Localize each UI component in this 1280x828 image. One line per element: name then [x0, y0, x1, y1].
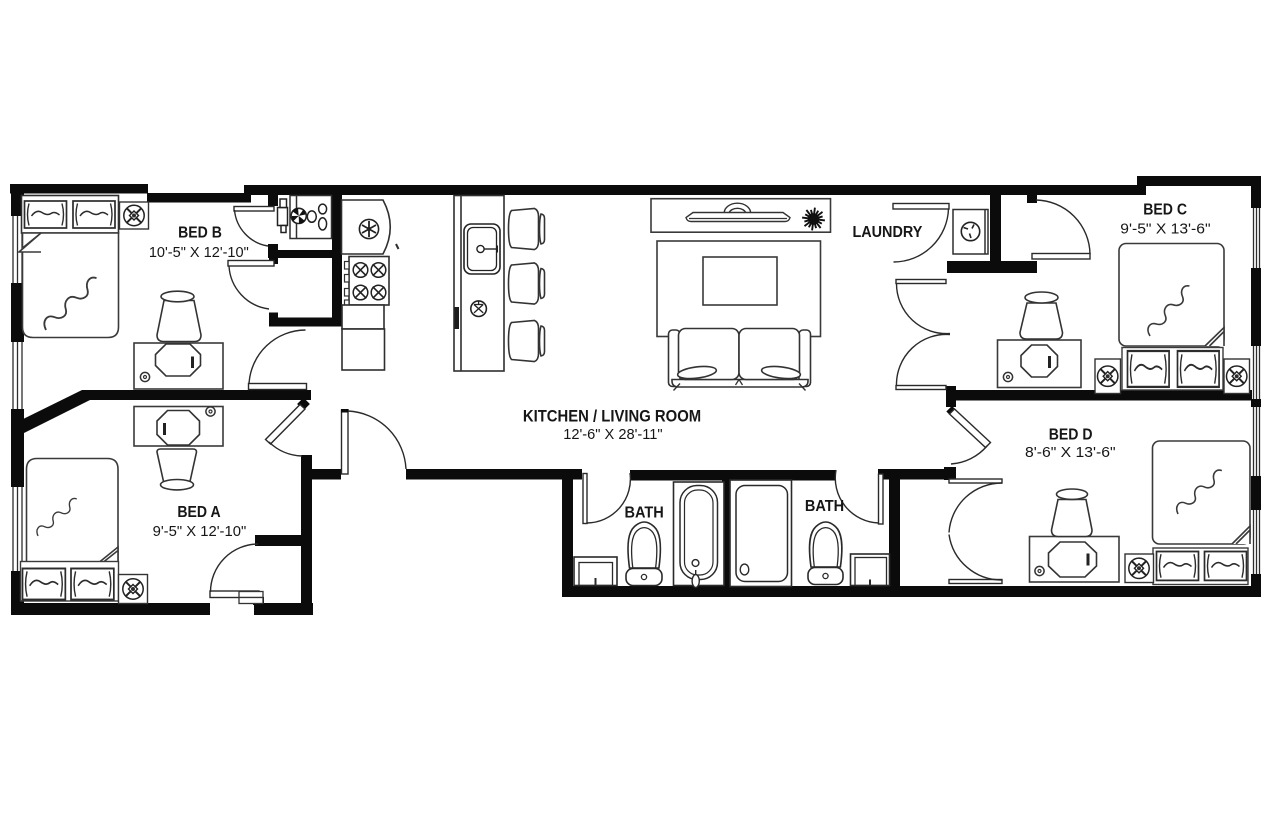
svg-text:BED B: BED B [178, 224, 222, 242]
svg-text:BATH: BATH [624, 504, 663, 522]
svg-text:LAUNDRY: LAUNDRY [852, 224, 922, 242]
svg-text:KITCHEN / LIVING ROOM: KITCHEN / LIVING ROOM [523, 408, 701, 426]
svg-text:8'-6" X 13'-6": 8'-6" X 13'-6" [1025, 444, 1116, 461]
svg-text:9'-5" X 13'-6": 9'-5" X 13'-6" [1120, 221, 1210, 238]
svg-text:10'-5" X 12'-10": 10'-5" X 12'-10" [149, 245, 249, 261]
svg-text:BED A: BED A [177, 503, 220, 521]
svg-text:BED C: BED C [1143, 201, 1187, 219]
svg-text:9'-5" X 12'-10": 9'-5" X 12'-10" [153, 524, 247, 540]
svg-text:12'-6" X 28'-11": 12'-6" X 28'-11" [563, 427, 662, 443]
svg-text:BATH: BATH [805, 498, 844, 516]
svg-text:BED D: BED D [1049, 425, 1093, 443]
